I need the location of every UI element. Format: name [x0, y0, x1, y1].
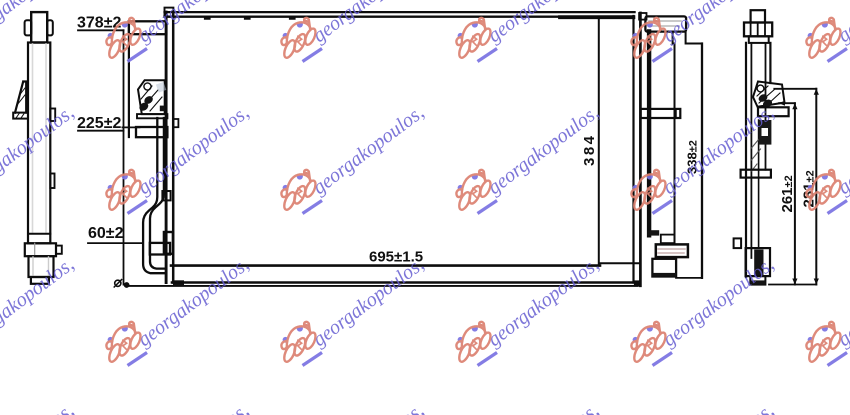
- svg-text:60±2: 60±2: [88, 225, 124, 242]
- svg-text:384: 384: [581, 133, 598, 166]
- svg-text:225±2: 225±2: [77, 115, 121, 132]
